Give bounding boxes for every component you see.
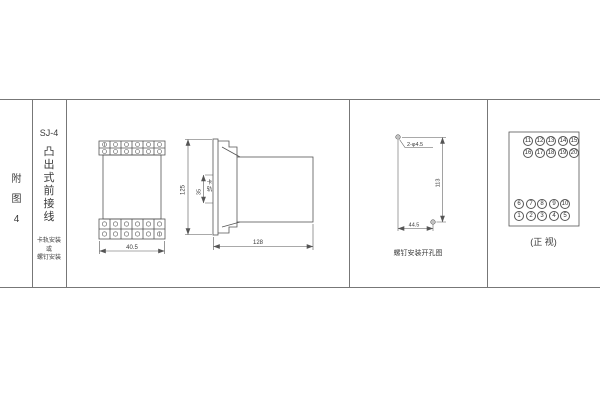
- terminal-19: 19: [558, 148, 568, 158]
- terminal-18: 18: [546, 148, 556, 158]
- mounting-note: 卡轨安装 或 螺钉安装: [32, 237, 66, 263]
- model-label: SJ-4: [32, 128, 66, 138]
- side-view-dimensions: [185, 140, 313, 251]
- terminal-view-caption: (正 视): [487, 235, 600, 248]
- side-depth-dim-label: 128: [253, 240, 264, 246]
- terminal-13: 13: [546, 136, 556, 146]
- terminal-12: 12: [535, 136, 545, 146]
- table-borders: [0, 100, 600, 288]
- terminal-11: 11: [523, 136, 533, 146]
- terminal-16: 16: [523, 148, 533, 158]
- side-height-dim-label: 125: [181, 184, 187, 195]
- drill-vertical-dim-label: 113: [436, 179, 442, 188]
- side-rail-dim-label: 35: [197, 189, 203, 195]
- front-width-dim-label: 40.5: [126, 245, 138, 251]
- terminal-1: 1: [514, 211, 524, 221]
- terminal-14: 14: [558, 136, 568, 146]
- terminal-15: 15: [569, 136, 579, 146]
- front-view-outline: [99, 141, 165, 239]
- wiring-type-label: 凸出式前接线: [43, 146, 55, 224]
- terminal-20: 20: [569, 148, 579, 158]
- terminal-10: 10: [560, 199, 570, 209]
- terminal-17: 17: [535, 148, 545, 158]
- terminal-7: 7: [526, 199, 536, 209]
- figure-index-label: 附图4: [10, 170, 23, 230]
- technical-drawing: 40.5 125 35 128: [0, 0, 600, 400]
- drill-holes-label: 2-φ4.5: [407, 142, 423, 148]
- terminal-3: 3: [537, 211, 547, 221]
- terminal-9: 9: [549, 199, 559, 209]
- terminal-2: 2: [526, 211, 536, 221]
- figure-sheet: 40.5 125 35 128: [0, 0, 600, 400]
- side-view-outline: [213, 139, 313, 235]
- terminal-4: 4: [549, 211, 559, 221]
- rail-label: 卡轨: [206, 180, 213, 194]
- terminal-5: 5: [560, 211, 570, 221]
- terminal-8: 8: [537, 199, 547, 209]
- drill-horizontal-dim-label: 44.5: [409, 223, 420, 229]
- drill-view-caption: 螺钉安装开孔图: [349, 248, 487, 258]
- terminal-6: 6: [514, 199, 524, 209]
